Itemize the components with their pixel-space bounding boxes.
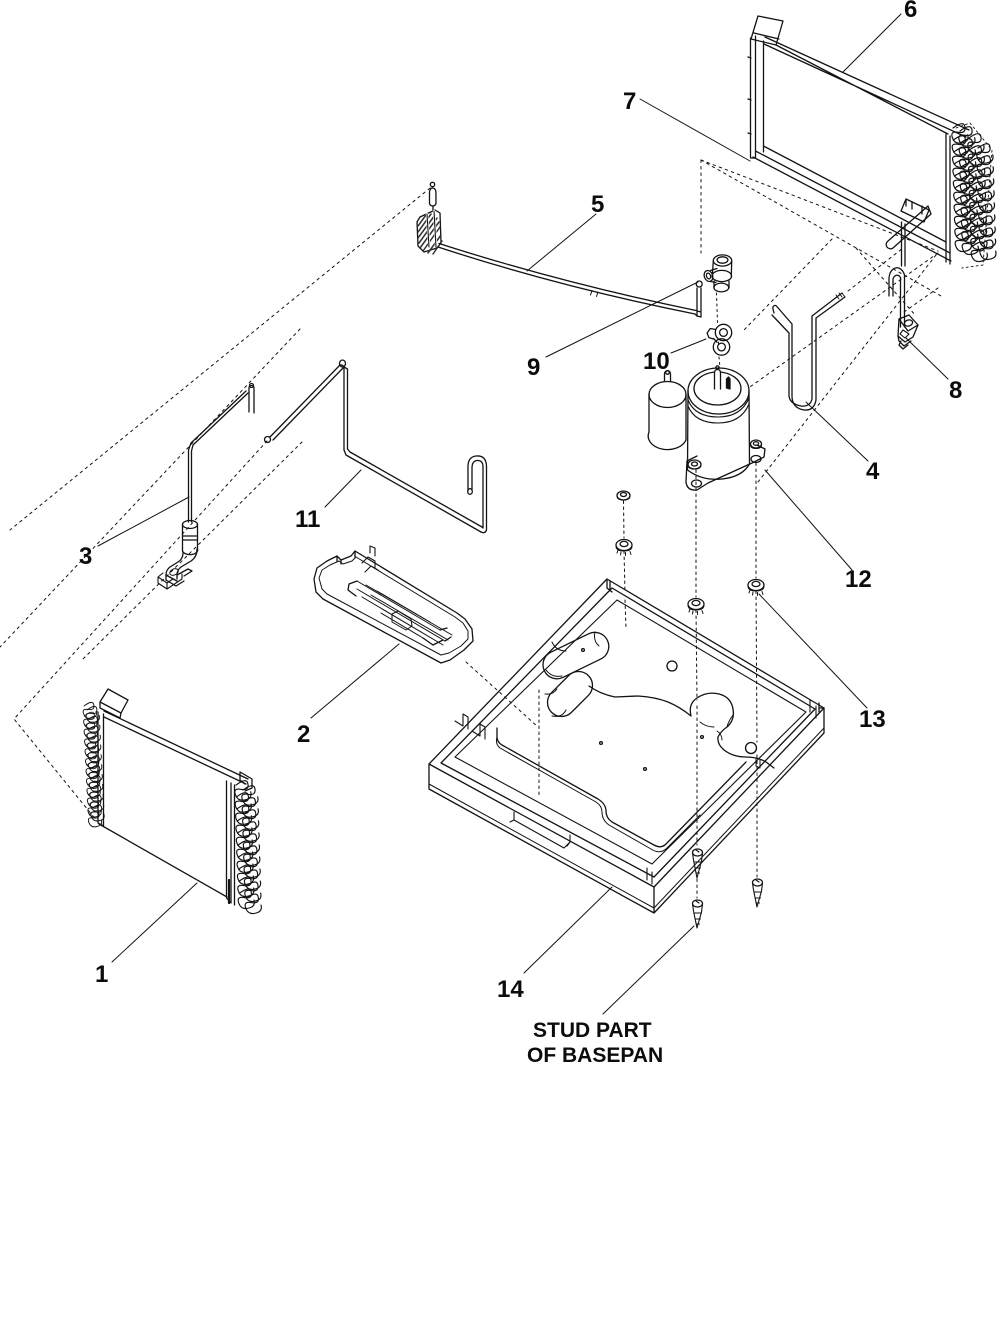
svg-text:13: 13 xyxy=(859,706,886,733)
svg-text:7: 7 xyxy=(623,88,636,115)
svg-text:2: 2 xyxy=(297,721,310,748)
svg-text:14: 14 xyxy=(497,976,524,1003)
svg-text:9: 9 xyxy=(527,354,540,381)
svg-text:OF BASEPAN: OF BASEPAN xyxy=(527,1044,663,1067)
svg-text:12: 12 xyxy=(845,566,872,593)
svg-text:4: 4 xyxy=(866,458,880,485)
svg-text:3: 3 xyxy=(79,543,92,570)
svg-text:STUD PART: STUD PART xyxy=(533,1019,652,1042)
svg-text:11: 11 xyxy=(295,506,320,533)
svg-text:10: 10 xyxy=(643,348,670,375)
svg-text:8: 8 xyxy=(949,377,962,404)
svg-text:5: 5 xyxy=(591,191,604,218)
svg-text:6: 6 xyxy=(904,0,917,23)
svg-text:1: 1 xyxy=(95,961,108,988)
